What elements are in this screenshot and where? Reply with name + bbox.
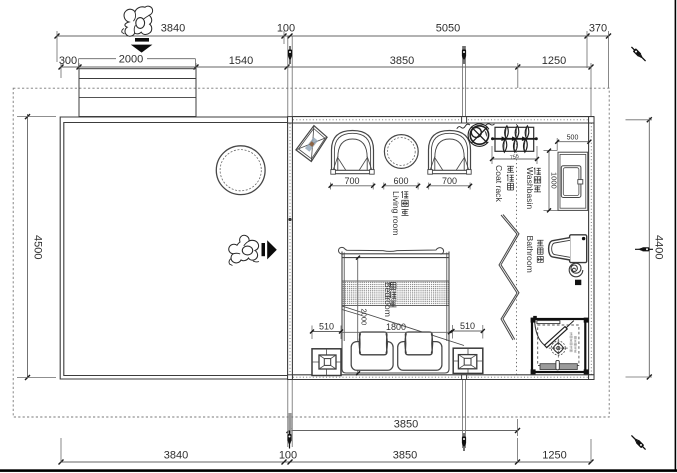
svg-text:700: 700	[344, 176, 359, 186]
svg-text:3850: 3850	[393, 450, 417, 462]
svg-text:510: 510	[460, 321, 475, 331]
svg-text:5050: 5050	[436, 23, 460, 35]
svg-text:Bathroom: Bathroom	[525, 236, 535, 273]
svg-text:2000: 2000	[360, 309, 369, 326]
svg-text:Coat rack: Coat rack	[494, 165, 504, 202]
svg-text:510: 510	[319, 322, 334, 332]
svg-text:300: 300	[59, 55, 77, 67]
svg-text:4400: 4400	[652, 235, 664, 259]
svg-text:2000: 2000	[119, 54, 143, 66]
svg-text:3850: 3850	[394, 419, 418, 431]
svg-text:3850: 3850	[390, 55, 414, 67]
svg-text:Washbasin: Washbasin	[525, 167, 535, 209]
svg-text:4500: 4500	[31, 235, 43, 259]
svg-text:100: 100	[277, 23, 295, 35]
svg-text:Living room: Living room	[391, 191, 401, 235]
svg-text:700: 700	[442, 176, 457, 186]
svg-text:1250: 1250	[542, 450, 566, 462]
svg-text:370: 370	[589, 23, 607, 35]
svg-text:1800: 1800	[386, 322, 406, 332]
svg-text:1000: 1000	[550, 172, 559, 189]
svg-text:3840: 3840	[164, 450, 188, 462]
svg-text:600: 600	[393, 176, 408, 186]
svg-text:500: 500	[567, 135, 579, 142]
svg-text:1250: 1250	[542, 55, 566, 67]
svg-text:100: 100	[279, 450, 297, 462]
svg-text:1540: 1540	[229, 55, 253, 67]
svg-text:3840: 3840	[161, 23, 185, 35]
